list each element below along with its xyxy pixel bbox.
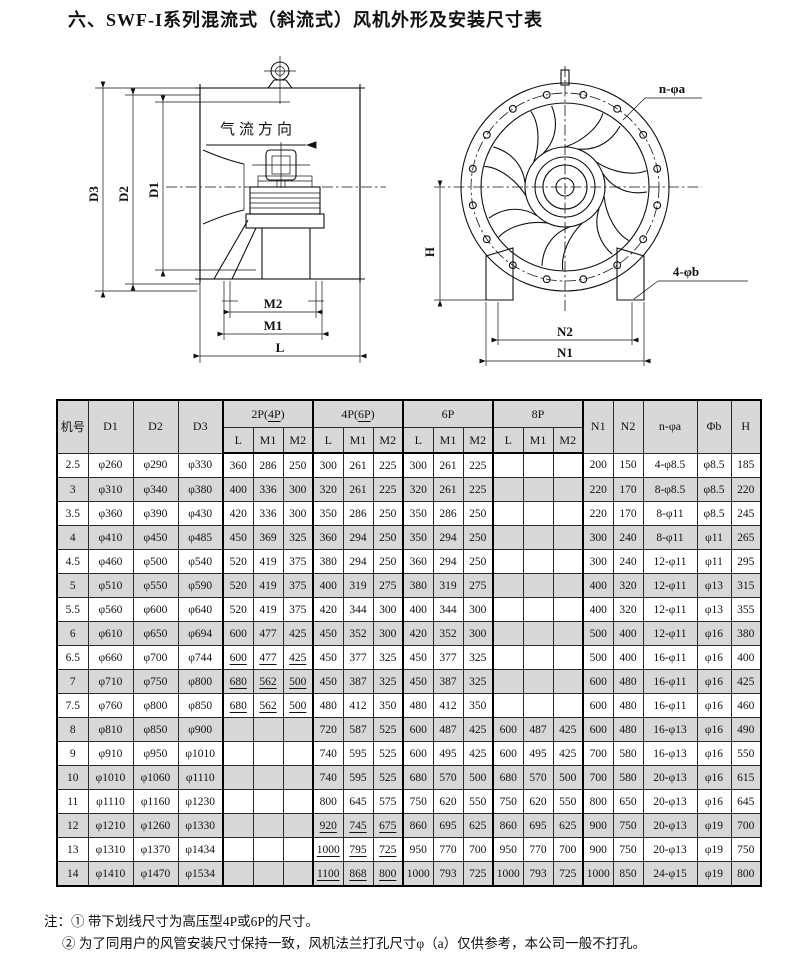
table-cell: φ660 (88, 646, 133, 670)
table-cell: 600 (583, 718, 613, 742)
table-cell: 344 (433, 598, 463, 622)
page-title: 六、SWF-I系列混流式（斜流式）风机外形及安装尺寸表 (68, 6, 543, 32)
table-cell (283, 766, 313, 790)
table-cell: 295 (731, 550, 761, 574)
table-cell (523, 550, 553, 574)
side-view-drawing: 气流方向 (86, 56, 386, 363)
table-cell: 860 (493, 814, 523, 838)
table-cell: φ610 (88, 622, 133, 646)
table-cell: φ1370 (133, 838, 178, 862)
sub-header-l: L (493, 428, 523, 454)
table-cell (283, 742, 313, 766)
table-cell (553, 526, 583, 550)
sub-header-m1: M1 (253, 428, 283, 454)
table-cell: 375 (283, 598, 313, 622)
table-cell: 261 (343, 478, 373, 502)
table-cell: 200 (583, 453, 613, 478)
table-cell: 480 (403, 694, 433, 718)
table-cell (493, 526, 523, 550)
table-cell: 420 (313, 598, 343, 622)
table-cell: 400 (223, 478, 253, 502)
table-cell: 412 (433, 694, 463, 718)
table-cell: 477 (253, 622, 283, 646)
table-body: 2.5φ260φ290φ3303602862503002612253002612… (57, 453, 761, 886)
table-cell: φ540 (178, 550, 223, 574)
table-cell: φ16 (697, 790, 731, 814)
table-cell: φ850 (133, 718, 178, 742)
table-cell: φ750 (133, 670, 178, 694)
table-cell: 250 (373, 526, 403, 550)
table-cell: φ560 (88, 598, 133, 622)
table-cell: 860 (403, 814, 433, 838)
table-cell: 800 (373, 862, 403, 887)
table-cell: 419 (253, 574, 283, 598)
dim-label-l: L (276, 340, 285, 355)
table-row: 9φ910φ950φ101074059552560049542560049542… (57, 742, 761, 766)
table-cell: 286 (253, 453, 283, 478)
table-cell: 325 (463, 670, 493, 694)
table-cell: 375 (283, 550, 313, 574)
table-cell (253, 790, 283, 814)
table-cell: 600 (223, 622, 253, 646)
table-cell: 350 (463, 694, 493, 718)
table-cell (553, 694, 583, 718)
table-cell: 750 (403, 790, 433, 814)
table-cell: 12-φ11 (643, 550, 697, 574)
table-cell: 700 (583, 742, 613, 766)
table-cell (493, 478, 523, 502)
table-cell: φ1330 (178, 814, 223, 838)
table-cell: 400 (731, 646, 761, 670)
table-cell: 600 (583, 694, 613, 718)
table-cell: 580 (613, 766, 643, 790)
table-cell: 1000 (583, 862, 613, 887)
table-cell: 6.5 (57, 646, 88, 670)
table-cell: 487 (523, 718, 553, 742)
table-cell: φ850 (178, 694, 223, 718)
base-dimensions: M2 M1 L (200, 281, 360, 363)
table-cell: 352 (343, 622, 373, 646)
table-cell (223, 718, 253, 742)
table-row: 3φ310φ340φ380400336300320261225320261225… (57, 478, 761, 502)
table-cell: 425 (463, 742, 493, 766)
table-cell: 12-φ11 (643, 574, 697, 598)
table-cell (493, 694, 523, 718)
table-cell: 20-φ13 (643, 814, 697, 838)
sub-header-l: L (313, 428, 343, 454)
table-cell: 261 (433, 453, 463, 478)
table-cell: 570 (523, 766, 553, 790)
table-cell: φ910 (88, 742, 133, 766)
table-cell: 380 (313, 550, 343, 574)
motor-assembly (203, 150, 324, 279)
sub-header-l: L (223, 428, 253, 454)
table-cell (493, 502, 523, 526)
table-cell: 325 (283, 526, 313, 550)
dim-label-m1: M1 (264, 318, 283, 333)
table-row: 8φ810φ850φ900720587525600487425600487425… (57, 718, 761, 742)
table-cell (523, 598, 553, 622)
table-cell: 7.5 (57, 694, 88, 718)
table-cell: 320 (403, 478, 433, 502)
table-cell: 750 (613, 838, 643, 862)
sub-header-m2: M2 (283, 428, 313, 454)
table-cell: 480 (613, 718, 643, 742)
table-cell: 595 (343, 766, 373, 790)
airflow-label: 气流方向 (220, 121, 296, 138)
table-cell: 460 (731, 694, 761, 718)
table-cell (523, 478, 553, 502)
dim-label-d3: D3 (86, 186, 101, 202)
table-cell: 750 (731, 838, 761, 862)
table-cell (553, 646, 583, 670)
table-cell (283, 718, 313, 742)
impeller-blade (590, 195, 638, 257)
impeller-blade (481, 142, 529, 204)
table-cell: 725 (553, 862, 583, 887)
table-cell: 245 (731, 502, 761, 526)
table-cell: 9 (57, 742, 88, 766)
table-cell: 325 (373, 646, 403, 670)
table-cell: 740 (313, 742, 343, 766)
table-cell: 350 (373, 694, 403, 718)
table-cell: 500 (553, 766, 583, 790)
table-cell: 425 (553, 718, 583, 742)
table-cell: φ1110 (178, 766, 223, 790)
table-cell: 425 (463, 718, 493, 742)
table-cell: 16-φ11 (643, 646, 697, 670)
table-cell: 315 (731, 574, 761, 598)
table-cell: 400 (613, 646, 643, 670)
table-cell: φ16 (697, 646, 731, 670)
table-cell: φ590 (178, 574, 223, 598)
table-cell: φ19 (697, 838, 731, 862)
table-cell (283, 862, 313, 887)
table-cell: 450 (313, 646, 343, 670)
diameter-dimensions: D3 D2 D1 (86, 88, 290, 291)
table-cell: 3.5 (57, 502, 88, 526)
table-cell: 350 (403, 526, 433, 550)
table-row: 4φ410φ450φ485450369325360294250350294250… (57, 526, 761, 550)
table-cell: φ1260 (133, 814, 178, 838)
table-cell: 770 (523, 838, 553, 862)
table-cell: 675 (373, 814, 403, 838)
table-cell (553, 670, 583, 694)
table-cell: 1100 (313, 862, 343, 887)
table-cell: 450 (223, 526, 253, 550)
table-cell: 275 (463, 574, 493, 598)
table-cell: 350 (313, 502, 343, 526)
table-cell: φ800 (178, 670, 223, 694)
table-cell (223, 814, 253, 838)
table-cell: 170 (613, 502, 643, 526)
table-cell (523, 622, 553, 646)
table-cell: 4-φ8.5 (643, 453, 697, 478)
impeller-blade (532, 221, 597, 277)
table-cell: φ340 (133, 478, 178, 502)
table-cell: 300 (403, 453, 433, 478)
table-cell: 450 (403, 670, 433, 694)
bolt-hole (580, 276, 587, 283)
table-cell: 562 (253, 670, 283, 694)
table-cell: 400 (313, 574, 343, 598)
bolt-hole (654, 202, 661, 209)
note-line-2: ② 为了同用户的风管安装尺寸保持一致，风机法兰打孔尺寸φ（a）仅供参考，本公司一… (62, 933, 646, 955)
table-cell: 412 (343, 694, 373, 718)
table-cell: 520 (223, 550, 253, 574)
table-cell: 793 (523, 862, 553, 887)
impeller-blade (483, 197, 548, 253)
table-cell: 695 (523, 814, 553, 838)
col-header-d2: D2 (133, 400, 178, 453)
table-cell: 425 (731, 670, 761, 694)
table-cell: φ16 (697, 718, 731, 742)
table-cell: 720 (313, 718, 343, 742)
table-cell: 220 (583, 502, 613, 526)
dim-label-n2: N2 (557, 324, 573, 339)
lifting-eye (264, 56, 296, 104)
table-cell: 580 (613, 742, 643, 766)
table-cell (523, 694, 553, 718)
table-cell: φ1230 (178, 790, 223, 814)
col-group-6p: 6P (403, 400, 493, 428)
dim-label-n1: N1 (557, 345, 573, 360)
table-cell: 20-φ13 (643, 766, 697, 790)
table-row: 6.5φ660φ700φ7446004774254503773254503773… (57, 646, 761, 670)
table-cell: 294 (433, 550, 463, 574)
table-cell: φ410 (88, 526, 133, 550)
bolt-callout-label: n-φa (659, 81, 686, 96)
table-cell: 16-φ13 (643, 742, 697, 766)
table-cell: 525 (373, 766, 403, 790)
table-cell: 480 (313, 694, 343, 718)
table-cell: 425 (553, 742, 583, 766)
col-group-8p: 8P (493, 400, 583, 428)
table-cell: 868 (343, 862, 373, 887)
table-cell: φ19 (697, 862, 731, 887)
table-cell: φ700 (133, 646, 178, 670)
table-cell: 725 (373, 838, 403, 862)
table-cell: 587 (343, 718, 373, 742)
table-cell: 325 (373, 670, 403, 694)
table-cell: 600 (403, 742, 433, 766)
table-cell: 495 (433, 742, 463, 766)
table-cell: 286 (343, 502, 373, 526)
table-row: 3.5φ360φ390φ4304203363003502862503502862… (57, 502, 761, 526)
table-row: 13φ1310φ1370φ143410007957259507707009507… (57, 838, 761, 862)
table-cell: 225 (463, 453, 493, 478)
h-dimension: H (422, 187, 440, 300)
table-cell: φ950 (133, 742, 178, 766)
table-cell: 225 (463, 478, 493, 502)
table-cell: φ694 (178, 622, 223, 646)
table-cell: φ900 (178, 718, 223, 742)
table-row: 7φ710φ750φ800680562500450387325450387325… (57, 670, 761, 694)
col-header-phib: Φb (697, 400, 731, 453)
table-cell: φ16 (697, 622, 731, 646)
table-cell: 570 (433, 766, 463, 790)
table-cell: φ11 (697, 550, 731, 574)
table-cell: 225 (373, 478, 403, 502)
table-cell: φ16 (697, 670, 731, 694)
table-cell: 355 (731, 598, 761, 622)
table-cell: φ760 (88, 694, 133, 718)
table-row: 5φ510φ550φ590520419375400319275380319275… (57, 574, 761, 598)
table-cell: 12-φ11 (643, 622, 697, 646)
table-cell: 8-φ8.5 (643, 478, 697, 502)
table-cell: 500 (463, 766, 493, 790)
table-cell: 320 (313, 478, 343, 502)
table-cell: φ744 (178, 646, 223, 670)
table-cell: 550 (731, 742, 761, 766)
table-cell: 793 (433, 862, 463, 887)
table-cell: 800 (583, 790, 613, 814)
table-cell: 325 (463, 646, 493, 670)
table-cell: 360 (223, 453, 253, 478)
front-view-drawing: H N2 N1 n-φa 4-φb (422, 66, 748, 366)
table-cell (253, 862, 283, 887)
note-line-1: 注：① 带下划线尺寸为高压型4P或6P的尺寸。 (44, 911, 646, 933)
sub-header-m2: M2 (553, 428, 583, 454)
table-cell: 300 (373, 622, 403, 646)
table-cell: 419 (253, 598, 283, 622)
table-cell: 900 (583, 838, 613, 862)
table-row: 11φ1110φ1160φ123080064557575062055075062… (57, 790, 761, 814)
table-cell: 170 (613, 478, 643, 502)
table-cell: 725 (463, 862, 493, 887)
table-cell: φ330 (178, 453, 223, 478)
table-cell: 520 (223, 574, 253, 598)
table-cell (493, 622, 523, 646)
table-cell: 320 (613, 598, 643, 622)
dim-label-d1: D1 (146, 182, 161, 198)
table-cell: 477 (253, 646, 283, 670)
table-cell: φ360 (88, 502, 133, 526)
table-header: 机号 D1 D2 D3 2P(4P) 4P(6P) 6P 8P N1 N2 n-… (57, 400, 761, 453)
table-cell: 225 (373, 453, 403, 478)
table-cell: 250 (463, 526, 493, 550)
table-cell: 369 (253, 526, 283, 550)
table-cell: 490 (731, 718, 761, 742)
table-cell: 300 (583, 526, 613, 550)
table-cell: 185 (731, 453, 761, 478)
sub-header-m1: M1 (433, 428, 463, 454)
table-cell (223, 766, 253, 790)
table-cell: φ13 (697, 574, 731, 598)
table-cell: φ19 (697, 814, 731, 838)
table-cell: 795 (343, 838, 373, 862)
table-cell: 16-φ11 (643, 694, 697, 718)
table-cell: φ500 (133, 550, 178, 574)
table-cell: 400 (583, 598, 613, 622)
table-cell: φ16 (697, 742, 731, 766)
table-cell (553, 622, 583, 646)
table-cell (493, 670, 523, 694)
table-cell (223, 838, 253, 862)
table-cell: 250 (463, 502, 493, 526)
table-cell: 11 (57, 790, 88, 814)
table-cell: φ16 (697, 766, 731, 790)
table-cell: 294 (343, 550, 373, 574)
table-cell: 680 (493, 766, 523, 790)
table-cell: 420 (403, 622, 433, 646)
table-cell: 650 (613, 790, 643, 814)
dim-label-d2: D2 (116, 186, 131, 202)
table-cell (493, 646, 523, 670)
table-cell: φ11 (697, 526, 731, 550)
table-cell: φ640 (178, 598, 223, 622)
table-cell: 495 (523, 742, 553, 766)
table-cell: 750 (613, 814, 643, 838)
table-cell: φ1110 (88, 790, 133, 814)
table-cell (523, 646, 553, 670)
table-cell: 300 (283, 502, 313, 526)
table-cell: 6 (57, 622, 88, 646)
bolt-hole (483, 131, 490, 138)
table-cell: 680 (223, 694, 253, 718)
table-cell: 319 (433, 574, 463, 598)
col-header-n2: N2 (613, 400, 643, 453)
table-cell: 375 (283, 574, 313, 598)
table-cell: 20-φ13 (643, 790, 697, 814)
table-cell: 4 (57, 526, 88, 550)
table-cell: 12 (57, 814, 88, 838)
table-cell: φ485 (178, 526, 223, 550)
table-cell: 645 (731, 790, 761, 814)
table-row: 12φ1210φ1260φ133092074567586069562586069… (57, 814, 761, 838)
table-cell: 294 (343, 526, 373, 550)
document-page: 六、SWF-I系列混流式（斜流式）风机外形及安装尺寸表 (0, 0, 800, 980)
table-cell: 261 (433, 478, 463, 502)
table-cell: φ460 (88, 550, 133, 574)
table-row: 7.5φ760φ800φ8506805625004804123504804123… (57, 694, 761, 718)
table-cell: φ1410 (88, 862, 133, 887)
table-cell: φ1434 (178, 838, 223, 862)
table-cell: φ810 (88, 718, 133, 742)
n-dimensions: N2 N1 (486, 302, 644, 366)
table-cell: 294 (433, 526, 463, 550)
table-cell: φ380 (178, 478, 223, 502)
table-cell: φ8.5 (697, 478, 731, 502)
table-row: 2.5φ260φ290φ3303602862503002612253002612… (57, 453, 761, 478)
table-cell: 24-φ15 (643, 862, 697, 887)
table-cell: 600 (223, 646, 253, 670)
table-cell: 420 (223, 502, 253, 526)
col-group-2p4p: 2P(4P) (223, 400, 313, 428)
table-cell (493, 550, 523, 574)
col-header-d1: D1 (88, 400, 133, 453)
table-cell: 525 (373, 718, 403, 742)
table-cell: 377 (433, 646, 463, 670)
col-group-4p6p: 4P(6P) (313, 400, 403, 428)
technical-drawings: 气流方向 (0, 46, 800, 398)
table-cell: φ1310 (88, 838, 133, 862)
table-cell: 920 (313, 814, 343, 838)
table-cell: φ390 (133, 502, 178, 526)
table-cell: 700 (731, 814, 761, 838)
table-cell: 10 (57, 766, 88, 790)
table-cell: 595 (343, 742, 373, 766)
table-cell: 740 (313, 766, 343, 790)
table-cell (223, 862, 253, 887)
impeller-blade (565, 113, 620, 149)
bolt-hole (580, 91, 587, 98)
sub-header-m1: M1 (523, 428, 553, 454)
table-cell: 387 (433, 670, 463, 694)
table-cell: φ290 (133, 453, 178, 478)
table-cell: 400 (403, 598, 433, 622)
table-cell (553, 574, 583, 598)
